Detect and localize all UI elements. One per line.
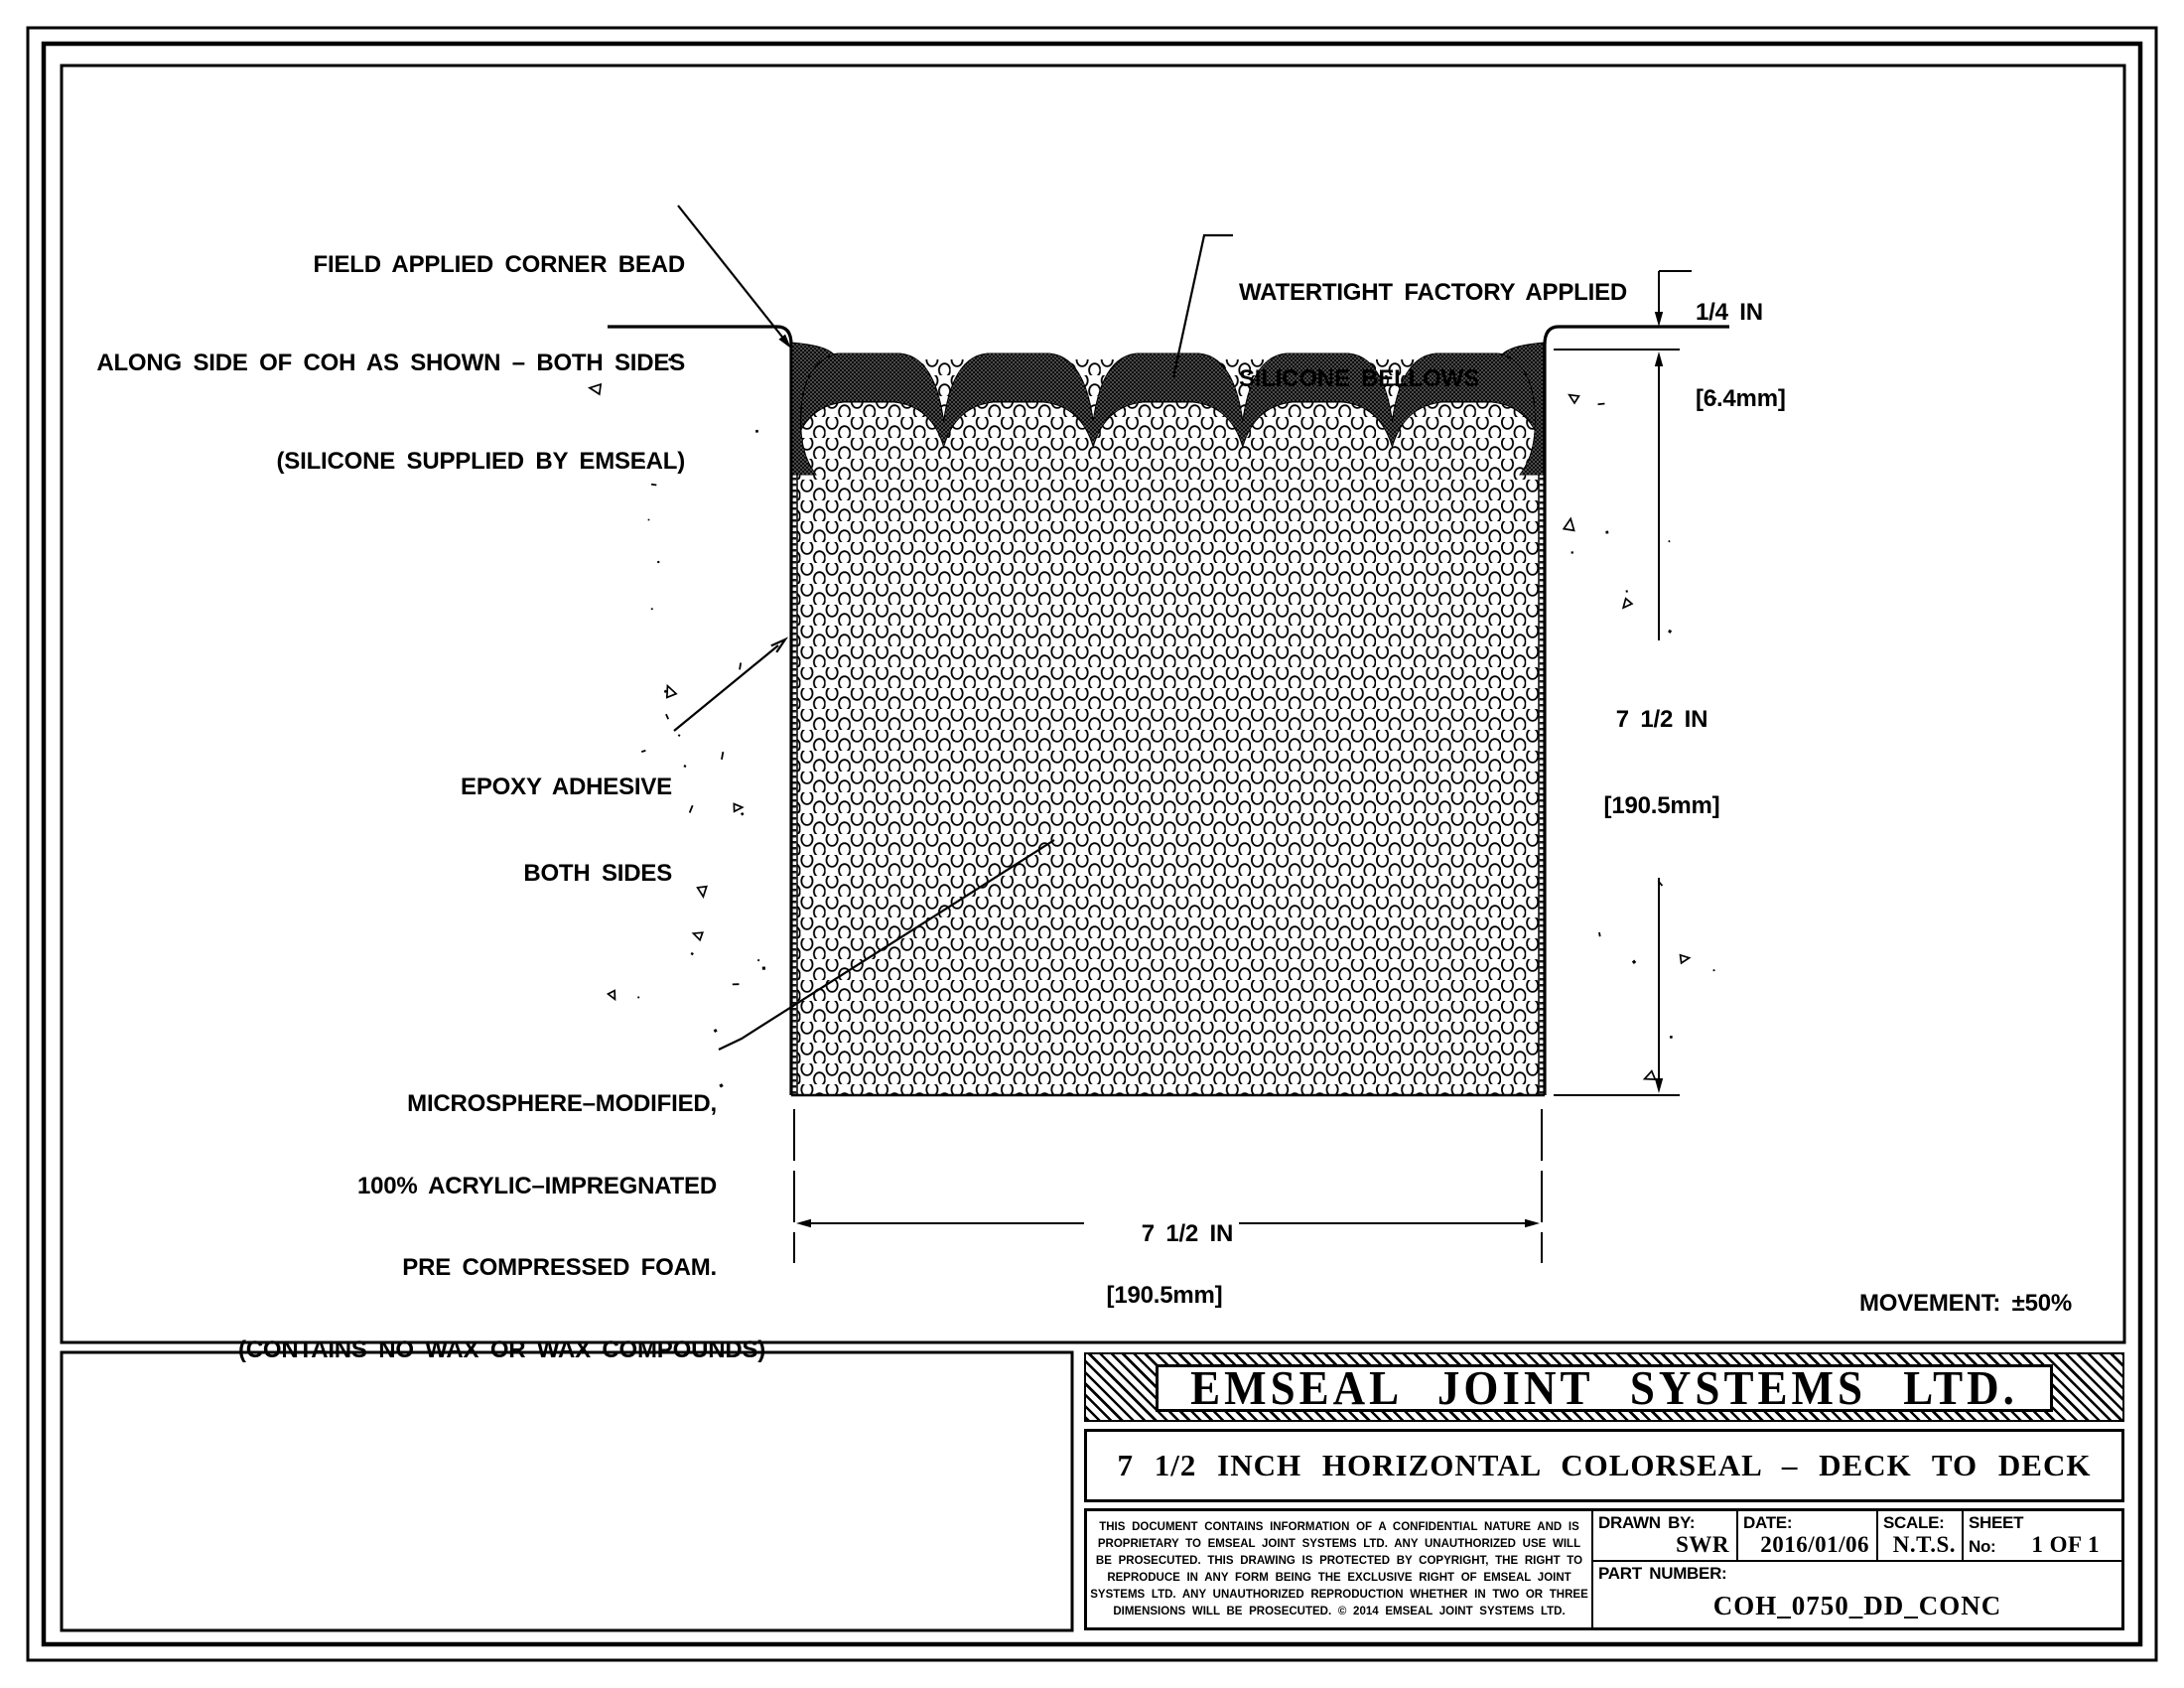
foam-body [794, 352, 1542, 1095]
dimension-width: 7 1/2 IN [190.5mm] [1070, 1188, 1259, 1372]
part-number-value: COH_0750_DD_CONC [1593, 1591, 2121, 1621]
label-line: FIELD APPLIED CORNER BEAD [94, 248, 685, 281]
sheet-label: SHEET [1969, 1513, 2023, 1533]
company-name-box: EMSEAL JOINT SYSTEMS LTD. [1156, 1364, 2053, 1412]
dimension-value-in: 7 1/2 IN [1573, 705, 1750, 734]
sheet-no-label: No: [1969, 1537, 1995, 1557]
part-number-cell: PART NUMBER: COH_0750_DD_CONC [1591, 1562, 2121, 1627]
part-number-label: PART NUMBER: [1598, 1564, 1726, 1584]
label-line: SILICONE BELLOWS [1239, 364, 1627, 393]
label-line: EPOXY ADHESIVE [417, 773, 672, 801]
dimension-value-mm: [190.5mm] [1070, 1280, 1259, 1311]
drawing-sheet: FIELD APPLIED CORNER BEAD ALONG SIDE OF … [0, 0, 2184, 1688]
label-line: WATERTIGHT FACTORY APPLIED [1239, 278, 1627, 307]
dimension-depth: 7 1/2 IN [190.5mm] [1573, 647, 1750, 878]
date-label: DATE: [1743, 1513, 1792, 1533]
company-name: EMSEAL JOINT SYSTEMS LTD. [1190, 1360, 2018, 1416]
legal-line: THIS DOCUMENT CONTAINS INFORMATION OF A … [1099, 1519, 1579, 1536]
movement-line: MOVEMENT: ±50% [1859, 1289, 2072, 1318]
scale-label: SCALE: [1883, 1513, 1944, 1533]
label-line: (CONTAINS NO WAX OR WAX COMPOUNDS) [238, 1336, 717, 1364]
label-line: ALONG SIDE OF COH AS SHOWN – BOTH SIDES [94, 347, 685, 379]
drawn-by-value: SWR [1676, 1532, 1729, 1558]
dimension-recess: 1/4 IN [6.4mm] [1696, 240, 1786, 471]
legal-line: REPRODUCE IN ANY FORM BEING THE EXCLUSIV… [1107, 1570, 1570, 1587]
sheet-cell: SHEET No: 1 OF 1 [1962, 1511, 2121, 1562]
legal-notice: THIS DOCUMENT CONTAINS INFORMATION OF A … [1087, 1511, 1591, 1627]
drawing-title-bar: 7 1/2 INCH HORIZONTAL COLORSEAL – DECK T… [1084, 1429, 2124, 1502]
dimension-value-mm: [6.4mm] [1696, 384, 1786, 413]
date-value: 2016/01/06 [1760, 1532, 1869, 1558]
drawn-by-cell: DRAWN BY: SWR [1591, 1511, 1736, 1562]
scale-cell: SCALE: N.T.S. [1876, 1511, 1962, 1562]
label-line: PRE COMPRESSED FOAM. [238, 1254, 717, 1282]
label-line: (SILICONE SUPPLIED BY EMSEAL) [94, 445, 685, 478]
sheet-no-value: 1 OF 1 [2031, 1532, 2100, 1558]
label-foam: MICROSPHERE–MODIFIED, 100% ACRYLIC–IMPRE… [238, 1036, 717, 1418]
legal-line: SYSTEMS LTD. ANY UNAUTHORIZED REPRODUCTI… [1090, 1587, 1588, 1604]
title-block-info-grid: THIS DOCUMENT CONTAINS INFORMATION OF A … [1084, 1508, 2124, 1630]
title-block: EMSEAL JOINT SYSTEMS LTD. 7 1/2 INCH HOR… [1084, 1352, 2124, 1630]
label-line: BOTH SIDES [417, 859, 672, 888]
drawn-by-label: DRAWN BY: [1598, 1513, 1695, 1533]
legal-line: PROPRIETARY TO EMSEAL JOINT SYSTEMS LTD.… [1098, 1536, 1580, 1553]
dimension-value-in: 7 1/2 IN [1136, 1218, 1239, 1249]
date-cell: DATE: 2016/01/06 [1736, 1511, 1876, 1562]
label-line: 100% ACRYLIC–IMPREGNATED [238, 1173, 717, 1200]
dimension-value-mm: [190.5mm] [1573, 791, 1750, 820]
scale-value: N.T.S. [1893, 1532, 1956, 1558]
label-line: MICROSPHERE–MODIFIED, [238, 1090, 717, 1118]
legal-line: DIMENSIONS WILL BE PROSECUTED. © 2014 EM… [1113, 1604, 1565, 1620]
label-silicone-bellows: WATERTIGHT FACTORY APPLIED SILICONE BELL… [1239, 220, 1627, 451]
legal-line: BE PROSECUTED. THIS DRAWING IS PROTECTED… [1096, 1553, 1582, 1570]
company-hatch-band: EMSEAL JOINT SYSTEMS LTD. [1084, 1352, 2124, 1422]
label-epoxy-adhesive: EPOXY ADHESIVE BOTH SIDES [417, 715, 672, 945]
dimension-value-in: 1/4 IN [1696, 298, 1786, 327]
drawing-title: 7 1/2 INCH HORIZONTAL COLORSEAL – DECK T… [1118, 1448, 2092, 1483]
label-corner-bead: FIELD APPLIED CORNER BEAD ALONG SIDE OF … [94, 183, 685, 543]
